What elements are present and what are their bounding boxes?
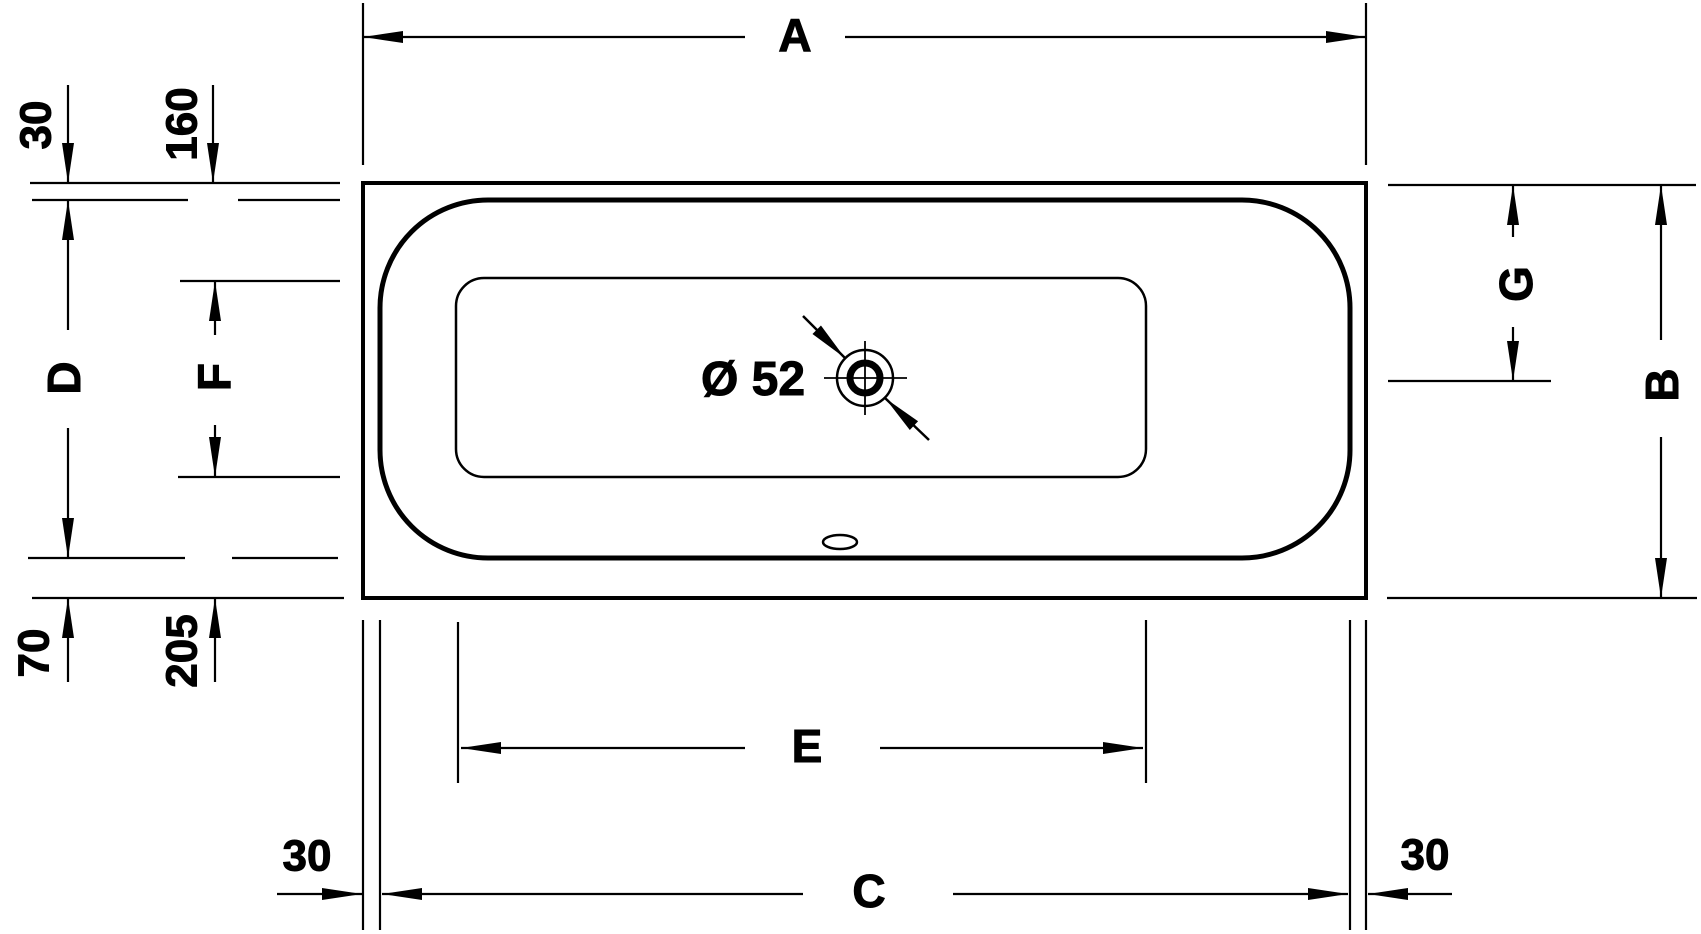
dim-label-f: F — [188, 363, 240, 391]
dim-label-e: E — [792, 720, 823, 772]
dim-label-c: C — [852, 865, 885, 917]
technical-drawing-page: Ø 52 A 30 D 70 160 F 205 — [0, 0, 1701, 934]
dim-value-rim-top: 30 — [11, 101, 60, 150]
drain-leader-arrow-lower — [885, 398, 929, 440]
left-dimensions: 30 D 70 160 F 205 — [9, 85, 344, 688]
overflow-slot — [823, 535, 857, 549]
dim-value-wall-right: 30 — [1401, 830, 1450, 879]
dim-label-a: A — [778, 9, 811, 61]
dim-label-b: B — [1636, 368, 1688, 401]
dim-label-d: D — [38, 361, 90, 394]
dim-value-deck-bottom: 205 — [157, 614, 206, 687]
drain-symbol: Ø 52 — [701, 316, 929, 440]
right-dimensions: G B — [1387, 185, 1697, 598]
technical-drawing-canvas: Ø 52 A 30 D 70 160 F 205 — [0, 0, 1701, 934]
bottom-dimensions: E C 30 30 — [277, 620, 1452, 930]
drain-leader-arrow-upper — [803, 316, 845, 358]
dim-value-wall-left: 30 — [283, 831, 332, 880]
drain-diameter-label: Ø 52 — [701, 353, 805, 406]
dim-label-g: G — [1490, 266, 1542, 302]
dimension-a: A — [363, 3, 1366, 165]
dim-value-rim-bottom: 70 — [9, 629, 58, 678]
dim-value-deck-top: 160 — [157, 87, 206, 160]
